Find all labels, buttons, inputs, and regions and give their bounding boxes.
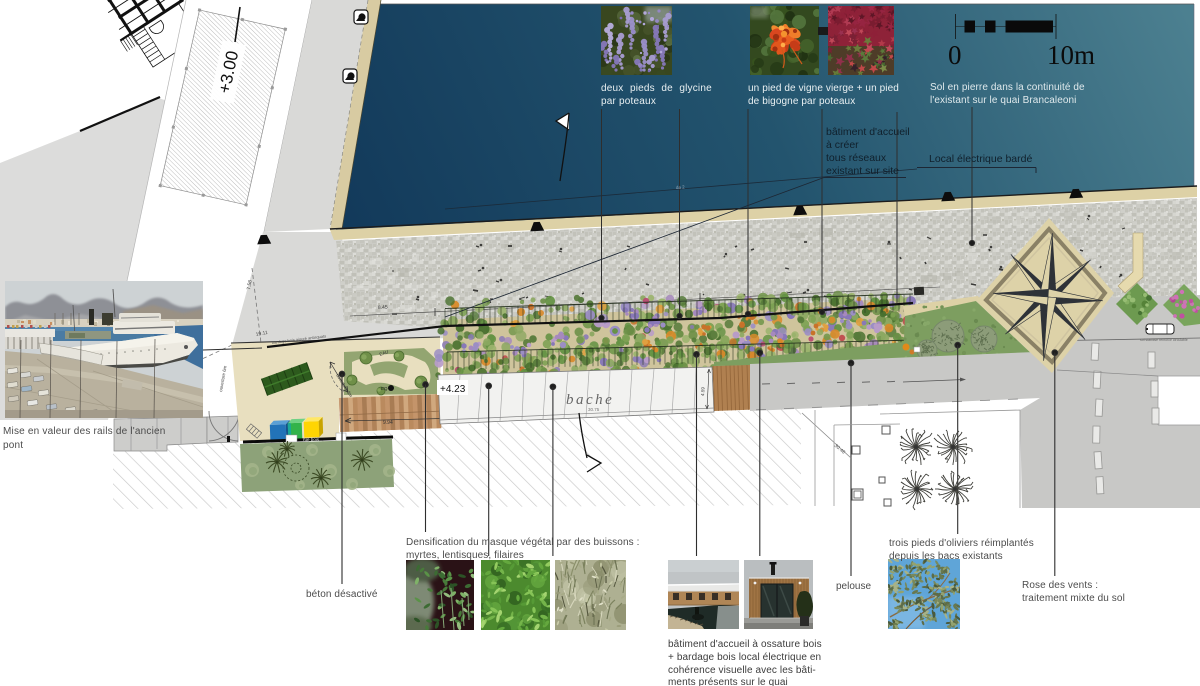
svg-text:0: 0 (948, 40, 962, 70)
svg-text:EQ: EQ (381, 386, 388, 391)
svg-text:pelouse: pelouse (836, 581, 871, 592)
svg-text:+4.23: +4.23 (440, 384, 466, 395)
svg-text:par poteaux: par poteaux (601, 96, 656, 107)
svg-text:bâtiment d'accueil à ossature: bâtiment d'accueil à ossature bois (668, 639, 822, 650)
svg-text:existant sur site: existant sur site (826, 165, 899, 177)
svg-text:Local électrique bardé: Local électrique bardé (929, 153, 1032, 165)
svg-text:myrtes, lentisques, filaires: myrtes, lentisques, filaires (406, 550, 524, 561)
svg-text:depuis les bacs existants: depuis les bacs existants (889, 551, 1003, 562)
svg-text:da 2: da 2 (676, 184, 686, 190)
svg-text:l'existant sur le quai Brancal: l'existant sur le quai Brancaleoni (930, 95, 1077, 106)
svg-text:+ bardage bois local électriqu: + bardage bois local électrique en (668, 652, 821, 663)
svg-text:Densification du masque végéta: Densification du masque végétal par des … (406, 537, 639, 548)
svg-text:deux pieds de glycine: deux pieds de glycine (601, 83, 712, 94)
svg-text:bâtiment d'accueil: bâtiment d'accueil (826, 126, 910, 138)
svg-text:Mise en valeur des rails de l': Mise en valeur des rails de l'ancien (3, 426, 166, 437)
svg-text:Sol en pierre dans la continui: Sol en pierre dans la continuité de (930, 82, 1085, 93)
svg-text:de bigogne par poteaux: de bigogne par poteaux (748, 96, 855, 107)
svg-text:4.59: 4.59 (700, 386, 706, 396)
svg-text:cohérence visuelle avec les bâ: cohérence visuelle avec les bâti- (668, 665, 816, 676)
svg-text:traitement mixte du sol: traitement mixte du sol (1022, 593, 1125, 604)
svg-text:tous réseaux: tous réseaux (826, 152, 887, 164)
svg-text:à créer: à créer (826, 139, 859, 151)
svg-text:8.45: 8.45 (378, 304, 388, 311)
svg-text:Rose des vents :: Rose des vents : (1022, 580, 1098, 591)
svg-text:30.75: 30.75 (588, 407, 600, 412)
svg-text:trois pieds d'oliviers réimpla: trois pieds d'oliviers réimplantés (889, 538, 1034, 549)
svg-text:9.94: 9.94 (383, 420, 393, 426)
svg-text:ments présents sur le quai: ments présents sur le quai (668, 677, 788, 686)
svg-text:bache: bache (566, 392, 614, 408)
svg-text:10m: 10m (1047, 40, 1095, 70)
svg-text:pont: pont (3, 440, 23, 451)
svg-text:béton désactivé: béton désactivé (306, 589, 378, 600)
svg-text:un pied de vigne vierge + un p: un pied de vigne vierge + un pied (748, 83, 899, 94)
svg-text:sol stabilisé renforcé circula: sol stabilisé renforcé circulable (1140, 338, 1188, 342)
svg-text:rue bois: rue bois (303, 437, 320, 442)
